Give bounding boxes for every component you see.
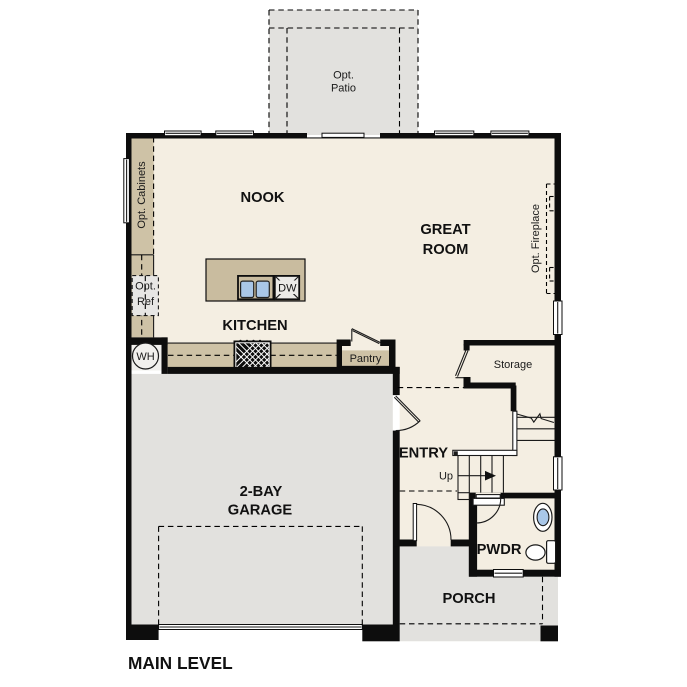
svg-text:PWDR: PWDR <box>477 542 522 558</box>
svg-text:Opt. Fireplace: Opt. Fireplace <box>530 204 542 273</box>
svg-text:PORCH: PORCH <box>442 591 495 607</box>
svg-text:NOOK: NOOK <box>240 190 284 206</box>
svg-text:Patio: Patio <box>331 83 356 95</box>
svg-text:Opt.: Opt. <box>333 70 354 82</box>
svg-text:Pantry: Pantry <box>350 353 382 365</box>
svg-text:Ref: Ref <box>137 296 155 308</box>
svg-text:Storage: Storage <box>494 359 533 371</box>
svg-text:GREAT: GREAT <box>420 222 470 238</box>
svg-text:Opt.: Opt. <box>135 281 156 293</box>
svg-text:2-BAY: 2-BAY <box>240 484 283 500</box>
svg-text:WH: WH <box>136 351 154 363</box>
svg-text:Up: Up <box>439 471 453 483</box>
svg-text:ROOM: ROOM <box>423 242 469 258</box>
svg-text:DW: DW <box>278 283 297 295</box>
svg-text:GARAGE: GARAGE <box>228 502 293 518</box>
svg-text:ENTRY: ENTRY <box>399 446 448 462</box>
svg-text:MAIN LEVEL: MAIN LEVEL <box>128 653 233 673</box>
svg-text:Opt. Cabinets: Opt. Cabinets <box>136 161 148 229</box>
svg-text:KITCHEN: KITCHEN <box>222 318 287 334</box>
